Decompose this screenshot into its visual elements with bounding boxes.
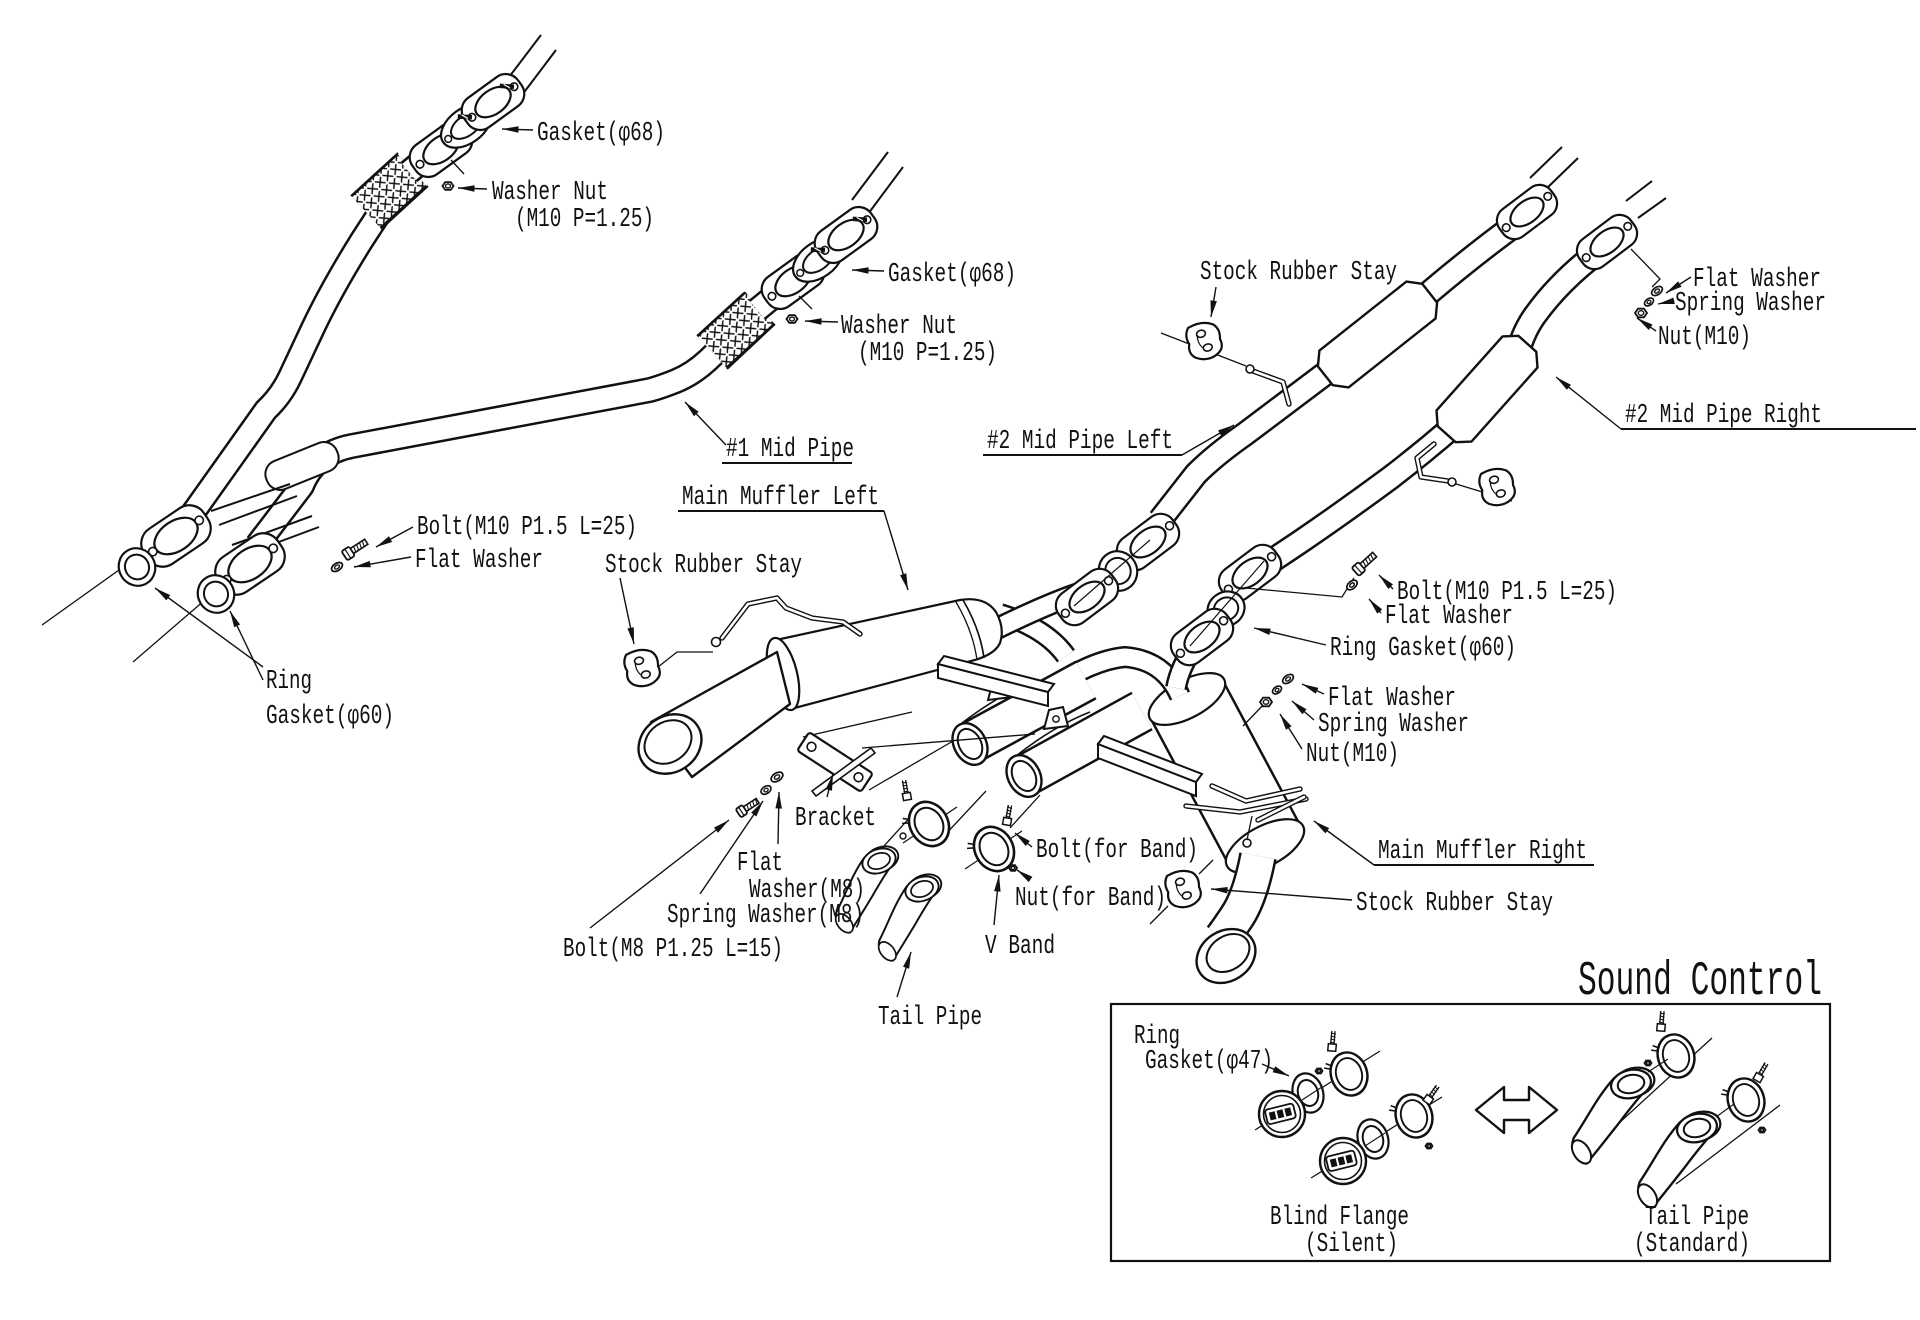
svg-text:#2 Mid Pipe Left: #2 Mid Pipe Left [987,427,1173,457]
svg-text:Nut(M10): Nut(M10) [1306,740,1399,770]
svg-text:Bolt(M10 P1.5 L=25): Bolt(M10 P1.5 L=25) [417,513,637,543]
svg-text:Gasket(φ68): Gasket(φ68) [888,260,1016,290]
svg-text:Gasket(φ47): Gasket(φ47) [1145,1047,1273,1077]
svg-text:Spring Washer(M8): Spring Washer(M8) [667,901,864,931]
svg-text:Blind Flange: Blind Flange [1270,1203,1409,1233]
svg-text:Bracket: Bracket [795,804,876,834]
svg-text:Flat Washer: Flat Washer [415,546,543,576]
svg-text:Flat: Flat [737,849,783,879]
svg-text:Main Muffler Right: Main Muffler Right [1378,837,1587,867]
svg-text:Bolt(M8 P1.25 L=15): Bolt(M8 P1.25 L=15) [563,935,783,965]
svg-text:Washer Nut: Washer Nut [841,312,957,342]
svg-text:Tail Pipe: Tail Pipe [878,1003,982,1033]
svg-text:Nut(for Band): Nut(for Band) [1015,884,1166,914]
svg-text:Tail Pipe: Tail Pipe [1645,1203,1749,1233]
svg-text:#2 Mid Pipe Right: #2 Mid Pipe Right [1625,401,1822,431]
svg-text:(Standard): (Standard) [1634,1230,1750,1260]
svg-text:Gasket(φ68): Gasket(φ68) [537,119,665,149]
svg-text:Nut(M10): Nut(M10) [1658,323,1751,353]
svg-text:Stock Rubber Stay: Stock Rubber Stay [1356,889,1553,919]
svg-text:Stock Rubber Stay: Stock Rubber Stay [1200,258,1397,288]
svg-text:Bolt(for Band): Bolt(for Band) [1036,836,1198,866]
svg-text:Ring Gasket(φ60): Ring Gasket(φ60) [1330,634,1516,664]
svg-text:#1 Mid Pipe: #1 Mid Pipe [726,435,854,465]
svg-text:Main Muffler Left: Main Muffler Left [682,483,879,513]
svg-text:(M10 P=1.25): (M10 P=1.25) [858,339,997,369]
svg-text:Sound Control: Sound Control [1578,955,1822,1009]
svg-text:Spring Washer: Spring Washer [1675,289,1826,319]
svg-text:(Silent): (Silent) [1305,1230,1398,1260]
svg-text:Spring Washer: Spring Washer [1318,710,1469,740]
svg-text:(M10 P=1.25): (M10 P=1.25) [515,205,654,235]
svg-text:V Band: V Band [985,932,1055,962]
svg-text:Stock Rubber Stay: Stock Rubber Stay [605,551,802,581]
svg-text:Flat Washer: Flat Washer [1385,602,1513,632]
svg-text:Ring: Ring [266,667,312,697]
svg-text:Gasket(φ60): Gasket(φ60) [266,702,394,732]
svg-text:Washer Nut: Washer Nut [492,178,608,208]
